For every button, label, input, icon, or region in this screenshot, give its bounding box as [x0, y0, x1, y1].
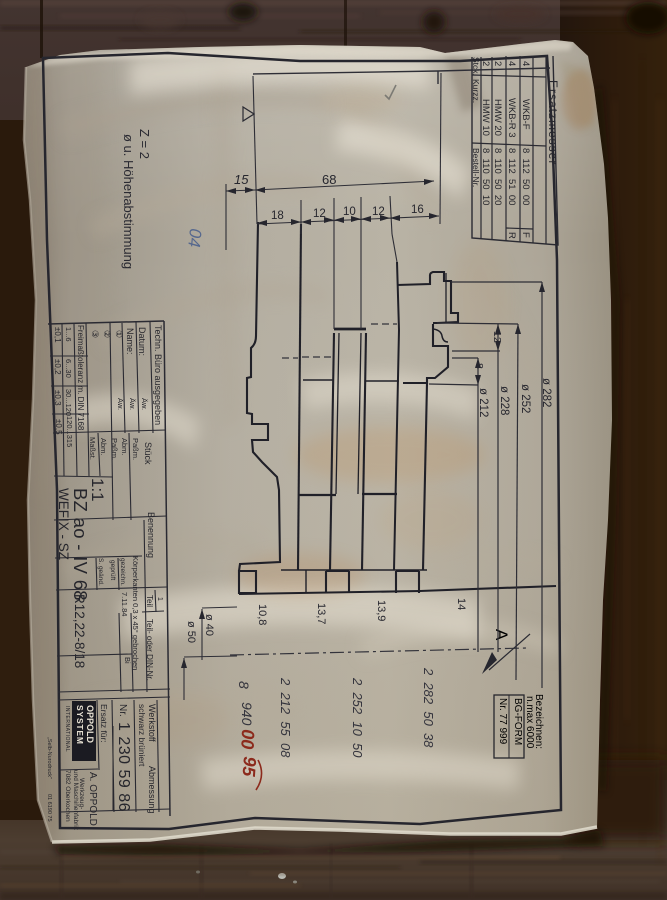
svg-text:Äw.: Äw.	[128, 398, 137, 410]
svg-text:HMW 10: HMW 10	[480, 99, 491, 136]
svg-text:7.11.84: 7.11.84	[120, 592, 129, 616]
svg-text:WEFIX - SZ: WEFIX - SZ	[56, 488, 71, 560]
svg-text:±0,5: ±0,5	[54, 419, 63, 435]
svg-text:Maßst.: Maßst.	[88, 437, 97, 460]
svg-text:2 252 10 50: 2 252 10 50	[350, 677, 365, 758]
svg-text:8: 8	[473, 363, 485, 369]
svg-text:8: 8	[236, 681, 252, 689]
svg-text:Kurzz.: Kurzz.	[471, 79, 481, 103]
svg-text:Ersatz für:: Ersatz für:	[99, 704, 109, 743]
svg-text:ø u. Höhenabstimmung: ø u. Höhenabstimmung	[121, 134, 136, 269]
svg-text:13,7: 13,7	[315, 603, 327, 624]
svg-text:8 112 50 00: 8 112 50 00	[520, 148, 531, 205]
svg-text:Benennung: Benennung	[146, 512, 156, 558]
svg-text:ø 252: ø 252	[519, 384, 531, 413]
svg-text:F: F	[520, 232, 531, 238]
svg-text:①: ①	[114, 330, 124, 338]
svg-text:gezeichn.: gezeichn.	[119, 558, 126, 586]
svg-text:±0,3: ±0,3	[53, 390, 62, 406]
svg-text:14: 14	[455, 598, 467, 610]
svg-text:②: ②	[102, 330, 112, 338]
svg-text:ø 228: ø 228	[498, 386, 510, 415]
svg-text:HMW 20: HMW 20	[492, 99, 503, 136]
svg-text:Ersatzmesser: Ersatzmesser	[546, 80, 560, 165]
svg-text:ø 212: ø 212	[477, 388, 489, 417]
svg-text:R: R	[506, 232, 517, 239]
svg-text:04: 04	[184, 228, 205, 249]
svg-text:8 110 50 10: 8 110 50 10	[480, 148, 491, 205]
svg-text:Bi: Bi	[123, 657, 132, 664]
svg-text:WKB-F: WKB-F	[520, 99, 531, 130]
svg-text:A: A	[492, 629, 511, 641]
svg-text:SYSTEM: SYSTEM	[75, 705, 85, 745]
svg-text:ø 282: ø 282	[540, 378, 552, 407]
svg-text:13,9: 13,9	[375, 600, 387, 621]
svg-text:8 112 51 00: 8 112 51 00	[506, 148, 517, 205]
svg-text:6...30: 6...30	[64, 359, 73, 378]
svg-text:„Selb-Nurodruck“: „Selb-Nurodruck“	[46, 737, 52, 779]
svg-text:Techn. Büro ausgegeben: Techn. Büro ausgegeben	[153, 325, 163, 425]
svg-text:n.max 6000: n.max 6000	[524, 696, 535, 749]
svg-text:R12,22-8/18: R12,22-8/18	[72, 594, 87, 668]
svg-text:4: 4	[520, 61, 531, 66]
svg-text:Datum:: Datum:	[137, 327, 147, 356]
svg-text:2: 2	[492, 61, 503, 66]
svg-text:Stck.: Stck.	[471, 57, 481, 76]
svg-text:2 282 50 38: 2 282 50 38	[421, 667, 436, 748]
svg-text:00: 00	[237, 729, 258, 750]
svg-text:±0,1: ±0,1	[53, 327, 62, 343]
svg-text:2 212 55 08: 2 212 55 08	[278, 677, 293, 758]
svg-text:BG-FORM: BG-FORM	[512, 698, 523, 745]
svg-text:Äw.: Äw.	[116, 398, 125, 410]
svg-text:Stück: Stück	[143, 442, 153, 465]
svg-text:15: 15	[234, 172, 249, 187]
svg-text:Abm.: Abm.	[120, 438, 129, 456]
svg-text:ø 40: ø 40	[203, 614, 215, 636]
svg-text:68: 68	[322, 172, 336, 187]
svg-text:schwarz brüniert: schwarz brüniert	[137, 704, 147, 767]
svg-text:Abm.: Abm.	[99, 438, 108, 456]
svg-text:30...120: 30...120	[64, 389, 73, 416]
svg-text:Nr. 77 999: Nr. 77 999	[497, 698, 508, 745]
svg-text:±0,2: ±0,2	[53, 359, 62, 375]
svg-text:Name:: Name:	[125, 328, 135, 355]
svg-text:4: 4	[506, 61, 517, 66]
svg-text:01 6190 75: 01 6190 75	[46, 794, 52, 822]
svg-text:Z = 2: Z = 2	[137, 129, 152, 159]
svg-text:1...6: 1...6	[64, 327, 73, 342]
svg-text:INTERNATIONAL: INTERNATIONAL	[64, 706, 70, 752]
svg-text:OPPOLD: OPPOLD	[85, 705, 95, 744]
svg-text:Abmessung: Abmessung	[147, 766, 157, 814]
svg-text:und Maschinenfabrik: und Maschinenfabrik	[72, 770, 79, 831]
svg-text:Teil: Teil	[145, 595, 154, 607]
svg-text:12: 12	[372, 206, 385, 218]
svg-text:7082 Oberkochen: 7082 Oberkochen	[64, 770, 71, 822]
svg-text:WKB-R 3: WKB-R 3	[506, 98, 517, 138]
svg-text:940: 940	[239, 702, 255, 726]
svg-text:Bestell-Nr.: Bestell-Nr.	[471, 148, 481, 187]
svg-text:1 230 59 86: 1 230 59 86	[115, 722, 132, 812]
svg-text:geprüft: geprüft	[109, 560, 116, 580]
svg-text:A. OPPOLD: A. OPPOLD	[87, 772, 98, 826]
svg-text:Werkstoff: Werkstoff	[147, 704, 157, 742]
svg-text:Nr.: Nr.	[117, 704, 128, 717]
svg-text:Paßm.: Paßm.	[131, 438, 140, 460]
svg-text:BZ ao - IV 68: BZ ao - IV 68	[70, 488, 91, 601]
svg-text:120...315: 120...315	[65, 416, 74, 447]
svg-text:ø 50: ø 50	[185, 621, 197, 643]
svg-text:10,8: 10,8	[256, 604, 268, 625]
svg-text:Körperkanten 0,3 x 45° gebroch: Körperkanten 0,3 x 45° gebrochen	[131, 556, 140, 670]
svg-text:1: 1	[156, 597, 163, 601]
svg-text:12: 12	[313, 208, 326, 220]
svg-text:Freimaßtoleranz m. DIN 7168: Freimaßtoleranz m. DIN 7168	[76, 325, 85, 431]
svg-text:18: 18	[271, 210, 284, 222]
svg-text:95: 95	[239, 756, 260, 778]
svg-text:8 110 50 20: 8 110 50 20	[492, 148, 503, 205]
svg-text:S. geänd.: S. geänd.	[97, 558, 104, 586]
svg-text:Äw.: Äw.	[140, 398, 149, 410]
svg-text:2: 2	[480, 61, 491, 66]
svg-text:Teil- oder DIN-Nr.: Teil- oder DIN-Nr.	[145, 619, 154, 681]
svg-text:10: 10	[343, 206, 356, 218]
svg-text:③: ③	[90, 330, 100, 338]
svg-text:16: 16	[411, 204, 424, 216]
svg-text:12: 12	[491, 331, 503, 343]
svg-text:Paßm.: Paßm.	[110, 438, 119, 460]
